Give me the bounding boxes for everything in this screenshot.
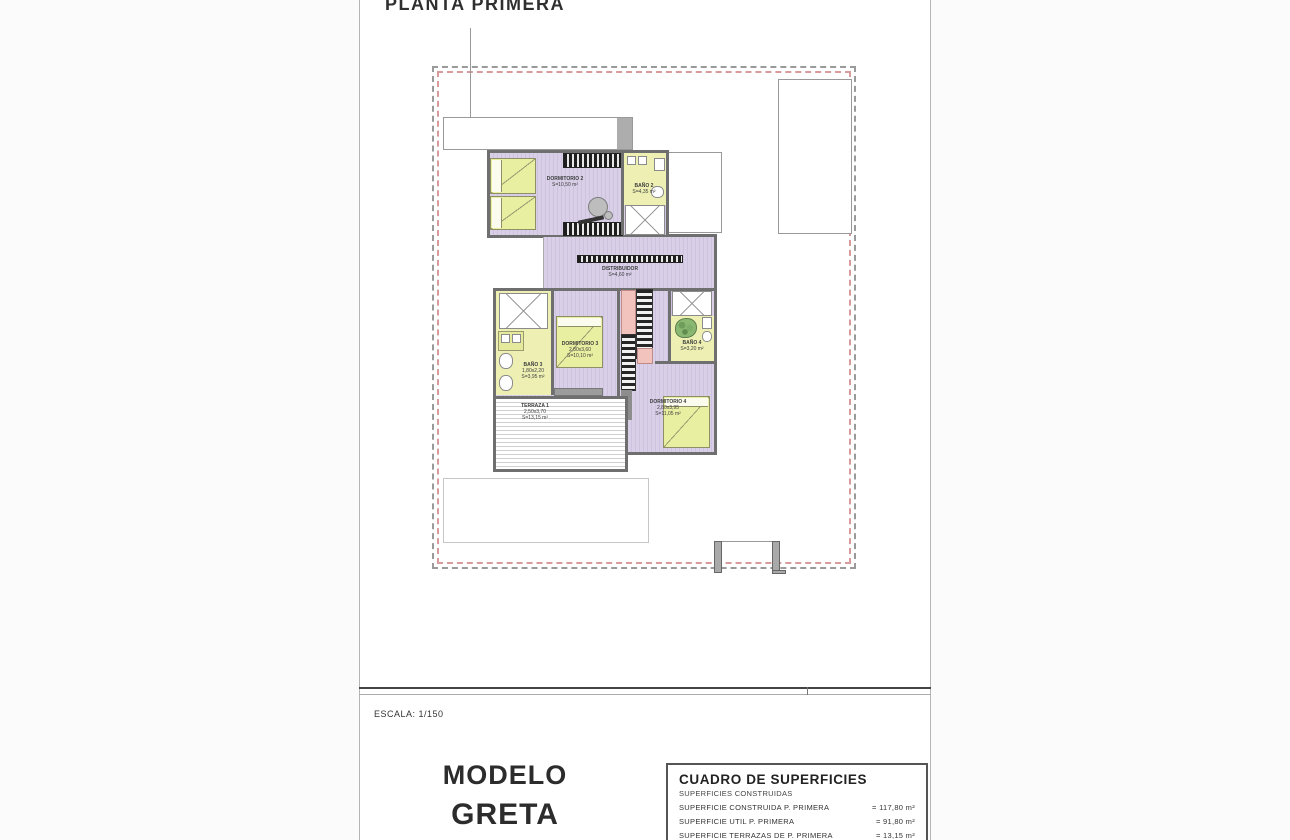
bano2-counter-item-2 bbox=[638, 156, 647, 165]
wardrobe-top bbox=[563, 153, 623, 168]
surfaces-table-title: CUADRO DE SUPERFICIES bbox=[679, 772, 915, 787]
gate-lintel-line bbox=[714, 541, 780, 542]
room-area: S=4,35 m² bbox=[624, 189, 664, 195]
bano2-counter-item bbox=[627, 156, 636, 165]
lower-terrace-outline bbox=[443, 478, 649, 543]
floor-plan-sheet-viewer: PLANTA PRIMERA DORMITORIO 2 S=10,50 m² B… bbox=[0, 0, 1290, 840]
room-area: S=11,05 m² bbox=[645, 411, 691, 417]
wardrobe-bottom bbox=[563, 222, 623, 236]
bed-single-1 bbox=[490, 158, 536, 194]
gate-post-right bbox=[772, 541, 780, 573]
room-area: S=13,15 m² bbox=[511, 415, 559, 421]
surfaces-table-subtitle: SUPERFICIES CONSTRUIDAS bbox=[679, 789, 915, 798]
label-dormitorio4: DORMITORIO 4 2,80x3,95 S=11,05 m² bbox=[645, 399, 691, 417]
bano3-bidet bbox=[499, 375, 513, 391]
distribuidor-top-wall bbox=[666, 234, 717, 237]
gate-post-foot bbox=[772, 570, 786, 574]
side-roof-outline bbox=[778, 79, 852, 234]
titleblock-divider-tick bbox=[807, 687, 808, 695]
terrace-roof-outline bbox=[668, 152, 722, 233]
stair-landing-strip bbox=[621, 290, 636, 336]
surface-value: = 117,80 m² bbox=[872, 803, 915, 812]
bano3-partition-wall bbox=[551, 288, 554, 395]
bano3-shower bbox=[499, 293, 548, 329]
bano2-shower bbox=[625, 205, 665, 235]
surface-label: SUPERFICIE UTIL P. PRIMERA bbox=[679, 817, 794, 826]
pergola-outline bbox=[443, 117, 633, 150]
surface-value: = 91,80 m² bbox=[876, 817, 915, 826]
label-dormitorio2: DORMITORIO 2 S=10,50 m² bbox=[534, 176, 596, 188]
surfaces-row-terrazas: SUPERFICIE TERRAZAS DE P. PRIMERA = 13,1… bbox=[679, 831, 915, 840]
room-area: S=3,20 m² bbox=[676, 346, 708, 352]
reference-line bbox=[470, 28, 471, 117]
gate-post-left bbox=[714, 541, 722, 573]
scale-label: ESCALA: 1/150 bbox=[374, 709, 444, 719]
surface-label: SUPERFICIE CONSTRUIDA P. PRIMERA bbox=[679, 803, 829, 812]
label-dormitorio3: DORMITORIO 3 2,80x3,60 S=10,10 m² bbox=[557, 341, 603, 359]
stair-landing bbox=[637, 348, 653, 364]
plant-icon bbox=[675, 318, 697, 338]
stair-partition-wall bbox=[617, 288, 620, 398]
room-area: S=10,10 m² bbox=[557, 353, 603, 359]
bano4-partition-wall bbox=[668, 288, 671, 364]
surfaces-row-util: SUPERFICIE UTIL P. PRIMERA = 91,80 m² bbox=[679, 817, 915, 826]
bano4-bottom-wall bbox=[655, 361, 717, 364]
surfaces-row-construida: SUPERFICIE CONSTRUIDA P. PRIMERA = 117,8… bbox=[679, 803, 915, 812]
surface-value: = 13,15 m² bbox=[876, 831, 915, 840]
label-bano3: BAÑO 3 1,80x2,20 S=3,95 m² bbox=[515, 362, 551, 380]
bano2-sink bbox=[654, 158, 665, 171]
label-terraza: TERRAZA 1 2,50x3,70 S=13,15 m² bbox=[511, 403, 559, 421]
chair-round bbox=[604, 211, 613, 220]
terrace-door-sill bbox=[554, 388, 603, 396]
model-word: MODELO bbox=[380, 760, 630, 791]
bano3-sink bbox=[501, 334, 510, 343]
bano3-toilet bbox=[499, 353, 513, 369]
room-area: S=3,95 m² bbox=[515, 374, 551, 380]
bed-single-2 bbox=[490, 196, 536, 230]
surface-label: SUPERFICIE TERRAZAS DE P. PRIMERA bbox=[679, 831, 833, 840]
bano4-sink bbox=[702, 317, 712, 329]
titleblock-divider-top bbox=[359, 687, 931, 689]
label-bano4: BAÑO 4 S=3,20 m² bbox=[676, 340, 708, 352]
bano3-sink-2 bbox=[512, 334, 521, 343]
stair-railing bbox=[577, 255, 683, 263]
room-area: S=4,60 m² bbox=[585, 272, 655, 278]
titleblock-divider-bottom bbox=[359, 694, 931, 695]
surfaces-table: CUADRO DE SUPERFICIES SUPERFICIES CONSTR… bbox=[666, 763, 928, 840]
pergola-end-fill bbox=[617, 118, 632, 149]
model-title-block: MODELO GRETA 4 DORMITORIOS bbox=[380, 760, 630, 840]
label-bano2: BAÑO 2 S=4,35 m² bbox=[624, 183, 664, 195]
distribuidor-floor bbox=[543, 237, 717, 290]
bano4-closet bbox=[672, 291, 712, 316]
label-distribuidor: DISTRIBUIDOR S=4,60 m² bbox=[585, 266, 655, 278]
stair-run-down bbox=[621, 334, 636, 391]
plan-title: PLANTA PRIMERA bbox=[385, 0, 565, 15]
model-name: GRETA bbox=[380, 798, 630, 832]
room-area: S=10,50 m² bbox=[534, 182, 596, 188]
